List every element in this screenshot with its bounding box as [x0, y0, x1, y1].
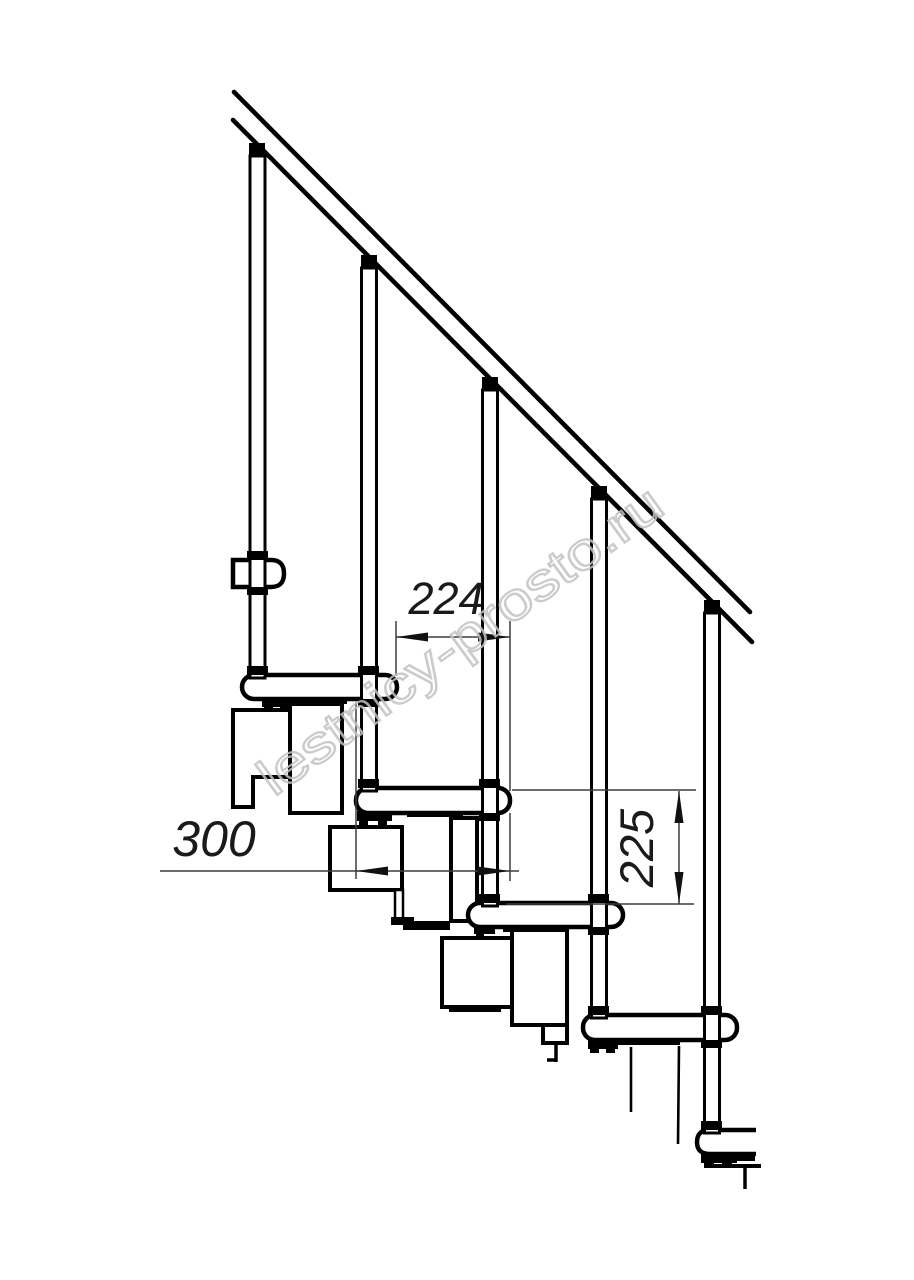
module-box-step2: [330, 827, 402, 890]
baluster-collar: [479, 894, 500, 903]
baluster-cap: [249, 143, 265, 156]
baluster-collar: [247, 587, 268, 595]
arrow-225-down: [675, 872, 684, 904]
baluster-collar: [247, 551, 268, 560]
staircase-drawing: 224 300 225 lestnicy-prosto.ru: [0, 0, 914, 1280]
module-box-step3: [442, 938, 518, 1007]
baluster-cap: [482, 377, 498, 390]
module-column-step3: [512, 930, 567, 1025]
baluster-cap: [704, 600, 720, 613]
baluster-collar: [701, 1121, 722, 1130]
module-column-step3-extension: [543, 1025, 567, 1043]
baluster-collar: [358, 779, 379, 788]
module-hook-step3: [547, 1043, 556, 1062]
module-box-step3-bottombar: [449, 1005, 501, 1012]
baluster-collar: [588, 1006, 609, 1015]
dim-label-225: 225: [610, 808, 663, 888]
baluster-collar: [588, 927, 609, 935]
baluster-1: [247, 143, 268, 678]
module-latch-step2: [395, 890, 403, 920]
baluster-collar: [701, 1040, 722, 1048]
baluster-tube: [250, 156, 265, 678]
baluster-5: [701, 600, 722, 1133]
baluster-cap: [591, 486, 607, 499]
baluster-collar: [479, 779, 500, 788]
baluster-collar: [588, 894, 609, 903]
watermark-text: lestnicy-prosto.ru: [247, 475, 674, 808]
baluster-cap: [361, 255, 377, 268]
baluster-collar: [479, 813, 500, 821]
baluster-collar: [701, 1006, 722, 1015]
cut-line-step4-b: [678, 1046, 679, 1144]
module-joint-step2: [403, 921, 450, 930]
baluster-collar: [247, 666, 268, 675]
dim-label-300: 300: [172, 811, 256, 867]
staircase-drawing-canvas: 224 300 225 lestnicy-prosto.ru: [0, 0, 914, 1280]
arrow-225-up: [675, 791, 684, 823]
baluster-tube: [705, 613, 720, 1133]
